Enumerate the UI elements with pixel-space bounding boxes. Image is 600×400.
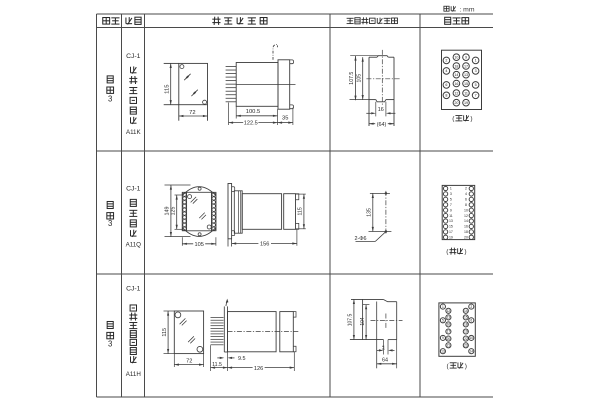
svg-text:13: 13 <box>464 73 468 77</box>
svg-text:5: 5 <box>442 319 444 323</box>
svg-text:9: 9 <box>465 56 467 60</box>
svg-text:14: 14 <box>469 349 473 353</box>
svg-text:17: 17 <box>464 64 468 68</box>
svg-text:14: 14 <box>464 219 468 223</box>
svg-text:5: 5 <box>450 198 452 202</box>
svg-text:2: 2 <box>465 187 467 191</box>
svg-text:A11H: A11H <box>126 371 141 378</box>
svg-text:15: 15 <box>449 225 453 229</box>
svg-text:1: 1 <box>450 187 452 191</box>
svg-text:CJ-1: CJ-1 <box>126 53 141 60</box>
svg-text:CJ-1: CJ-1 <box>126 286 141 293</box>
svg-text:16: 16 <box>454 82 458 86</box>
svg-text:11: 11 <box>464 91 468 95</box>
svg-text:3: 3 <box>108 95 112 104</box>
svg-text:23: 23 <box>464 344 468 348</box>
svg-text:CJ-1: CJ-1 <box>126 185 141 192</box>
svg-text:105: 105 <box>357 74 363 83</box>
svg-text:3: 3 <box>450 192 452 196</box>
svg-text:7: 7 <box>450 203 452 207</box>
svg-text:20: 20 <box>464 235 468 239</box>
svg-text:): ) <box>465 363 467 370</box>
svg-text:125: 125 <box>171 207 177 216</box>
svg-text:12: 12 <box>454 91 458 95</box>
svg-text:4: 4 <box>465 192 467 196</box>
svg-text:16: 16 <box>464 225 468 229</box>
svg-text:11: 11 <box>449 214 453 218</box>
svg-text:115: 115 <box>298 207 304 215</box>
svg-text:156: 156 <box>260 242 269 248</box>
svg-text:122.5: 122.5 <box>244 120 258 126</box>
svg-text:16: 16 <box>378 107 384 113</box>
svg-text:9: 9 <box>450 208 452 212</box>
svg-text:(64): (64) <box>377 122 387 128</box>
svg-text:72: 72 <box>189 110 195 116</box>
svg-text:3: 3 <box>475 69 477 73</box>
svg-text:: mm: : mm <box>458 6 475 13</box>
svg-text:6: 6 <box>470 319 472 323</box>
svg-text:64: 64 <box>382 357 388 363</box>
svg-text:22: 22 <box>464 337 468 341</box>
svg-text:15: 15 <box>464 316 468 320</box>
svg-text:13: 13 <box>447 316 451 320</box>
svg-text:A11Q: A11Q <box>126 241 142 248</box>
svg-text:): ) <box>464 249 466 256</box>
svg-text:6: 6 <box>465 198 467 202</box>
svg-text:9.5: 9.5 <box>238 356 246 362</box>
svg-text:12: 12 <box>447 309 451 313</box>
svg-text:4: 4 <box>445 69 447 73</box>
svg-text:107.5: 107.5 <box>349 72 355 85</box>
svg-text:6: 6 <box>445 83 447 87</box>
svg-text:13: 13 <box>441 349 445 353</box>
svg-text:100.5: 100.5 <box>246 109 261 115</box>
svg-text:9: 9 <box>442 336 444 340</box>
svg-text:20: 20 <box>454 101 458 105</box>
svg-text:2: 2 <box>470 305 472 309</box>
svg-text:11.5: 11.5 <box>212 362 222 368</box>
svg-text:17: 17 <box>447 330 451 334</box>
svg-text:3: 3 <box>108 339 112 348</box>
svg-text:19: 19 <box>464 101 468 105</box>
svg-text:): ) <box>470 116 472 123</box>
svg-text:35: 35 <box>282 115 288 121</box>
svg-text:105: 105 <box>195 242 204 248</box>
svg-text:10: 10 <box>454 56 458 60</box>
svg-text:19: 19 <box>464 330 468 334</box>
svg-text:1: 1 <box>475 59 477 63</box>
svg-text:16: 16 <box>447 323 451 327</box>
svg-text:A11K: A11K <box>126 129 142 136</box>
svg-text:2: 2 <box>445 59 447 63</box>
svg-text:3: 3 <box>108 219 112 228</box>
svg-text:12: 12 <box>464 214 468 218</box>
svg-text:20: 20 <box>447 337 451 341</box>
svg-text:18: 18 <box>464 230 468 234</box>
svg-text:21: 21 <box>447 344 451 348</box>
svg-text:135: 135 <box>367 208 373 217</box>
svg-text:8: 8 <box>445 94 447 98</box>
svg-text:7: 7 <box>475 94 477 98</box>
svg-text:14: 14 <box>454 73 458 77</box>
svg-text:18: 18 <box>454 64 458 68</box>
svg-text:10: 10 <box>469 336 473 340</box>
svg-text:13: 13 <box>449 219 453 223</box>
svg-text:115: 115 <box>164 85 170 94</box>
svg-text:14: 14 <box>464 309 468 313</box>
svg-text:5: 5 <box>475 83 477 87</box>
svg-text:107.5: 107.5 <box>348 314 354 327</box>
svg-text:15: 15 <box>464 82 468 86</box>
svg-text:10: 10 <box>464 208 468 212</box>
svg-text:3.4: 3.4 <box>382 345 386 350</box>
svg-text:2-Φ6: 2-Φ6 <box>354 236 366 242</box>
svg-text:8: 8 <box>465 203 467 207</box>
svg-text:126: 126 <box>254 366 263 372</box>
svg-text:18: 18 <box>464 323 468 327</box>
svg-text:104: 104 <box>360 317 366 326</box>
svg-text:1: 1 <box>442 305 444 309</box>
svg-text:72: 72 <box>186 358 192 364</box>
svg-text:19: 19 <box>449 235 453 239</box>
svg-text:115: 115 <box>162 328 168 337</box>
svg-text:17: 17 <box>449 230 453 234</box>
